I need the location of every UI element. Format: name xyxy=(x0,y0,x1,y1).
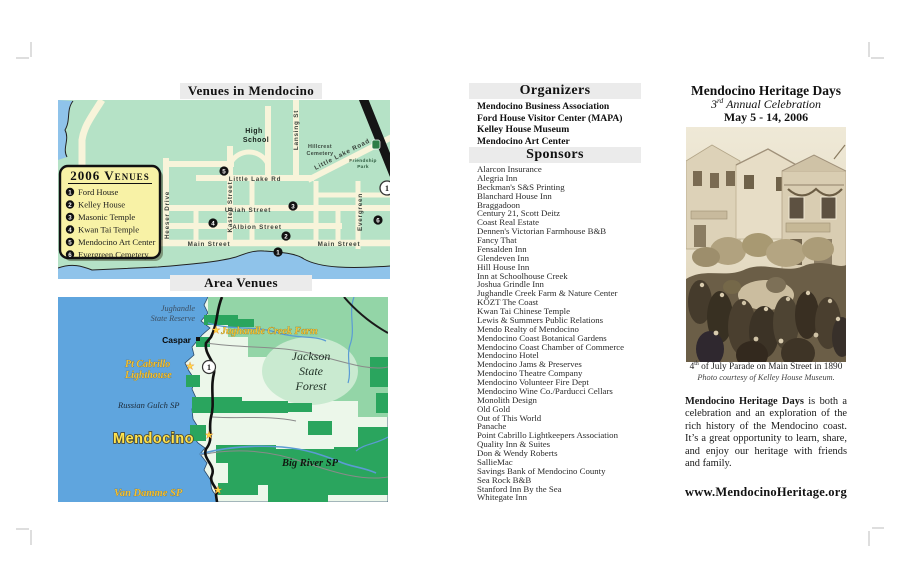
label-big-river: Big River SP xyxy=(281,458,339,469)
historic-photo xyxy=(686,127,846,362)
map-title-venues: Venues in Mendocino xyxy=(180,83,322,99)
caspar-dot xyxy=(196,337,200,341)
label-pt-cabrillo-2: Lighthouse xyxy=(124,370,172,381)
description-paragraph: Mendocino Heritage Days is both a celebr… xyxy=(685,396,847,471)
sponsors-header: Sponsors xyxy=(469,147,641,163)
organizers-list: Mendocino Business AssociationFord House… xyxy=(477,101,641,147)
organizer-item: Ford House Visitor Center (MAPA) xyxy=(477,113,641,125)
poi-hillcrest-line2: Cemetery xyxy=(307,151,334,157)
photo-credit: Photo courtesy of Kelley House Museum. xyxy=(685,373,847,383)
label-pt-cabrillo-1: Pt Cabrillo xyxy=(125,359,170,370)
star-icon: ★ xyxy=(205,430,213,440)
photo-caption: 4th of July Parade on Main Street in 189… xyxy=(685,362,847,373)
star-icon: ★ xyxy=(212,325,220,335)
organizers-header: Organizers xyxy=(469,83,641,99)
label-jackson-1: Jackson xyxy=(292,349,331,363)
heritage-title: Mendocino Heritage Days xyxy=(685,84,847,98)
street-label-evergreen: Evergreen xyxy=(357,193,364,231)
venue-marker-4: 4 xyxy=(208,218,217,227)
highway-1-shield: 1 xyxy=(203,361,216,374)
legend-item: 6 Evergreen Cemetery xyxy=(66,250,150,260)
photo-crowd xyxy=(686,263,846,362)
label-jughandle-reserve-2: State Reserve xyxy=(151,314,196,323)
label-caspar: Caspar xyxy=(162,335,192,345)
legend-item: 5 Mendocino Art Center xyxy=(66,237,156,247)
heritage-dates: May 5 - 14, 2006 xyxy=(685,111,847,124)
venues-map: Heeser Drive Kasten Street Lansing St Ev… xyxy=(58,100,390,279)
label-russian-gulch: Russian Gulch SP xyxy=(117,400,179,410)
svg-text:1: 1 xyxy=(276,249,280,256)
label-mendocino: Mendocino xyxy=(113,431,194,447)
organizer-item: Kelley House Museum xyxy=(477,124,641,136)
paragraph-lead: Mendocino Heritage Days xyxy=(685,396,804,407)
label-jackson-2: State xyxy=(299,364,324,378)
star-icon: ★ xyxy=(186,361,194,371)
website-url[interactable]: www.MendocinoHeritage.org xyxy=(685,485,847,500)
sponsor-item: Whitegate Inn xyxy=(477,493,647,502)
street-label-heeser: Heeser Drive xyxy=(164,191,171,239)
svg-text:4: 4 xyxy=(211,220,215,227)
label-jackson-3: Forest xyxy=(295,379,328,393)
poi-friendship-line1: Friendship xyxy=(349,158,377,164)
svg-text:2: 2 xyxy=(68,202,72,209)
svg-text:2: 2 xyxy=(284,233,288,240)
area-map: 1 Jughandle State Reserve ★ Jughandle Cr… xyxy=(58,297,388,502)
svg-text:Masonic Temple: Masonic Temple xyxy=(78,212,135,222)
svg-text:Evergreen Cemetery: Evergreen Cemetery xyxy=(78,250,149,260)
poi-friendship-line2: Park xyxy=(357,164,369,170)
label-jughandle-reserve-1: Jughandle xyxy=(161,304,195,313)
brochure-page: Venues in Mendocino xyxy=(0,0,900,587)
crop-mark xyxy=(868,42,870,57)
organizer-item: Mendocino Business Association xyxy=(477,101,641,113)
legend-title: 2006 Venues xyxy=(70,168,149,183)
svg-text:Mendocino Art Center: Mendocino Art Center xyxy=(78,237,155,247)
map-title-area-venues: Area Venues xyxy=(170,275,312,291)
svg-text:5: 5 xyxy=(222,168,226,175)
venues-legend: 2006 Venues 1 Ford House 2 Kelley House … xyxy=(60,166,163,261)
star-icon: ★ xyxy=(214,485,222,495)
poi-hillcrest-line1: Hillcrest xyxy=(308,144,332,150)
street-label-little-lake-rd: Little Lake Rd xyxy=(229,176,282,183)
venue-marker-1: 1 xyxy=(273,247,282,256)
svg-text:6: 6 xyxy=(68,252,72,259)
svg-text:6: 6 xyxy=(376,217,380,224)
svg-text:5: 5 xyxy=(68,239,72,246)
svg-text:3: 3 xyxy=(68,214,72,221)
label-van-damme: Van Damme SP xyxy=(114,488,183,499)
crop-mark xyxy=(30,530,32,545)
street-label-albion: Albion Street xyxy=(232,224,282,231)
street-label-lansing: Lansing St xyxy=(293,110,300,150)
highway-1-shield: 1 xyxy=(380,181,390,195)
svg-text:Kelley House: Kelley House xyxy=(78,200,125,210)
organizer-item: Mendocino Art Center xyxy=(477,136,641,148)
svg-text:Kwan Tai Temple: Kwan Tai Temple xyxy=(78,225,139,235)
venue-marker-5: 5 xyxy=(219,166,228,175)
poi-high-school-line1: High xyxy=(245,128,263,135)
venue-marker-2: 2 xyxy=(281,231,290,240)
crop-mark xyxy=(30,42,32,57)
venue-marker-6: 6 xyxy=(373,215,382,224)
street-label-main-west: Main Street xyxy=(188,241,231,248)
sponsors-list: Alarcon InsuranceAlegria InnBeckman's S&… xyxy=(477,165,647,502)
svg-text:Ford House: Ford House xyxy=(78,187,119,197)
svg-text:1: 1 xyxy=(385,183,389,193)
crop-mark xyxy=(16,528,29,530)
svg-text:3: 3 xyxy=(291,203,295,210)
crop-mark xyxy=(872,527,884,529)
poi-high-school-line2: School xyxy=(243,137,269,144)
street-label-main-east: Main Street xyxy=(318,241,361,248)
label-jughandle-farm: Jughandle Creek Farm xyxy=(220,326,318,337)
svg-text:1: 1 xyxy=(68,189,72,196)
street-label-ukiah: Ukiah Street xyxy=(225,207,271,214)
crop-mark xyxy=(868,531,870,546)
crop-mark xyxy=(871,57,884,59)
svg-text:1: 1 xyxy=(207,362,211,372)
venue-marker-3: 3 xyxy=(288,201,297,210)
crop-mark xyxy=(16,57,29,59)
svg-text:4: 4 xyxy=(68,227,72,234)
